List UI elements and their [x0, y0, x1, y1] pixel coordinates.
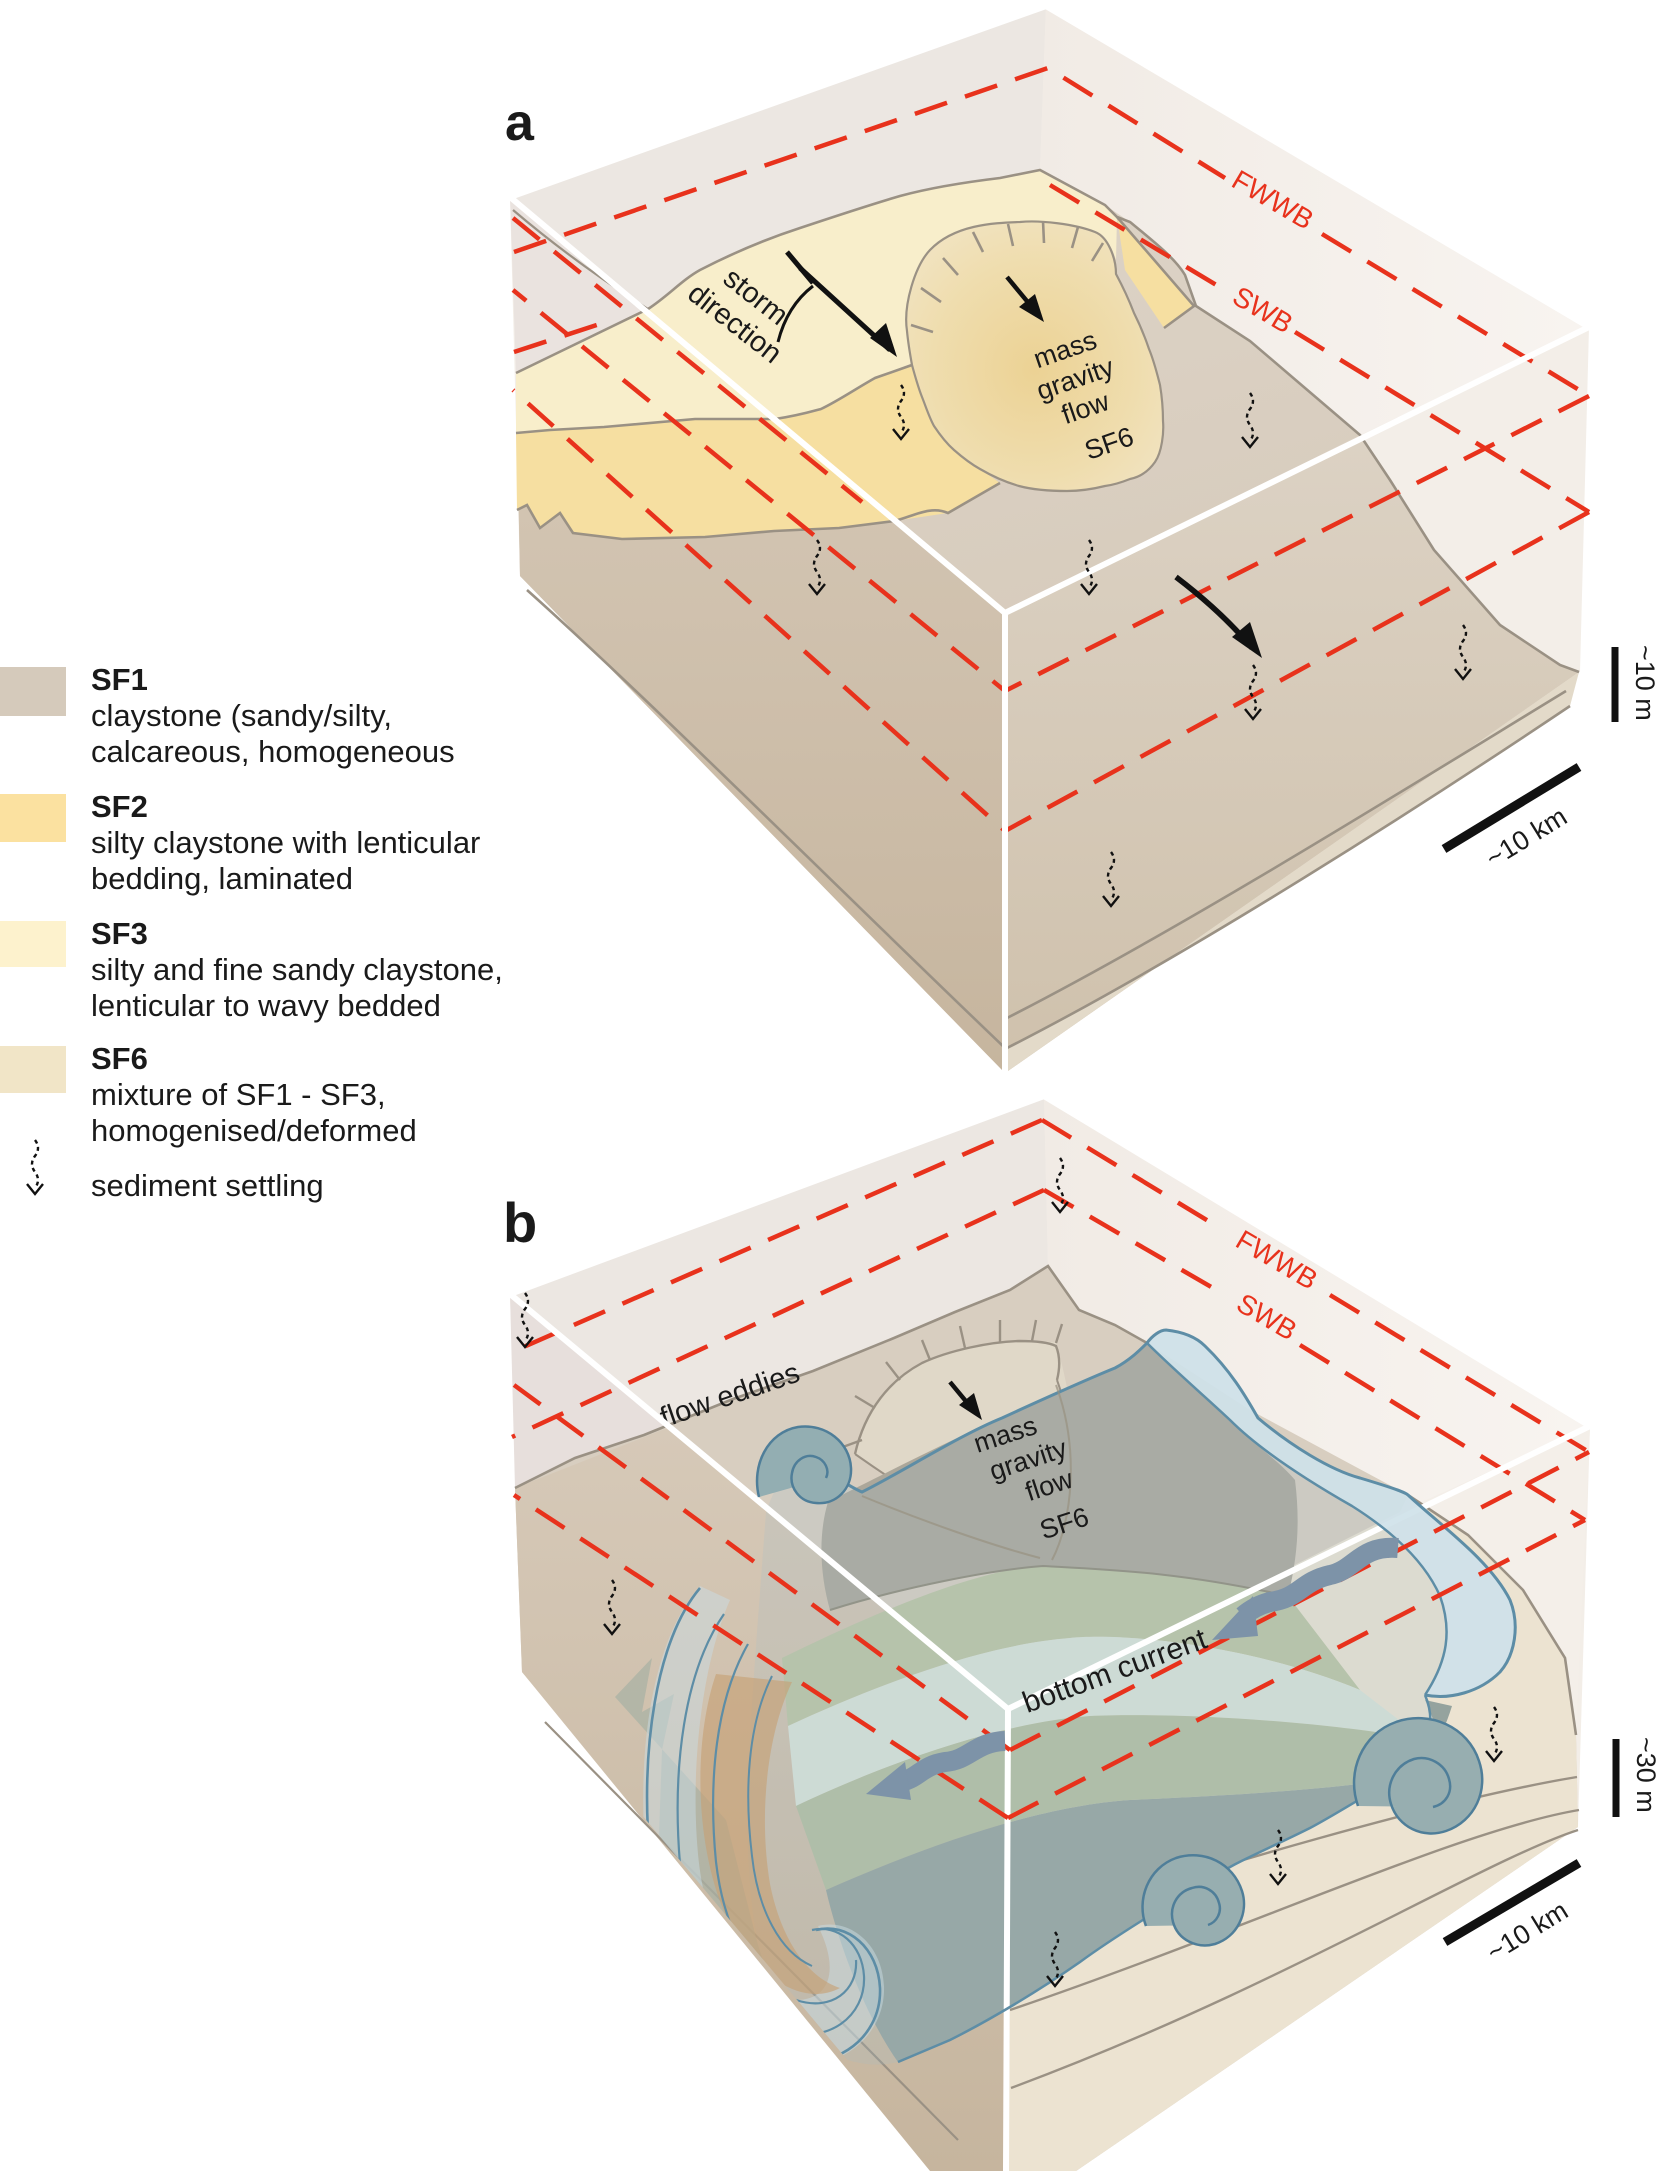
svg-text:SF6: SF6 — [91, 1041, 148, 1076]
svg-text:mixture of SF1 - SF3,: mixture of SF1 - SF3, — [91, 1077, 386, 1112]
svg-text:~30 m: ~30 m — [1631, 1737, 1659, 1813]
svg-text:calcareous, homogeneous: calcareous, homogeneous — [91, 734, 455, 769]
svg-text:b: b — [503, 1191, 537, 1254]
svg-text:~10 km: ~10 km — [1481, 1895, 1573, 1967]
svg-text:claystone (sandy/silty,: claystone (sandy/silty, — [91, 698, 392, 733]
svg-text:silty and fine sandy claystone: silty and fine sandy claystone, — [91, 952, 503, 987]
svg-text:a: a — [505, 94, 535, 152]
svg-text:lenticular to wavy bedded: lenticular to wavy bedded — [91, 988, 441, 1023]
svg-text:~10 m: ~10 m — [1630, 645, 1659, 721]
svg-text:bedding, laminated: bedding, laminated — [91, 861, 353, 896]
svg-text:homogenised/deformed: homogenised/deformed — [91, 1113, 417, 1148]
svg-text:SF2: SF2 — [91, 789, 148, 824]
svg-text:sediment settling: sediment settling — [91, 1168, 324, 1203]
svg-text:~10 km: ~10 km — [1480, 801, 1572, 873]
svg-text:SF3: SF3 — [91, 916, 148, 951]
svg-text:silty claystone with lenticula: silty claystone with lenticular — [91, 825, 480, 860]
svg-text:SF1: SF1 — [91, 662, 148, 697]
